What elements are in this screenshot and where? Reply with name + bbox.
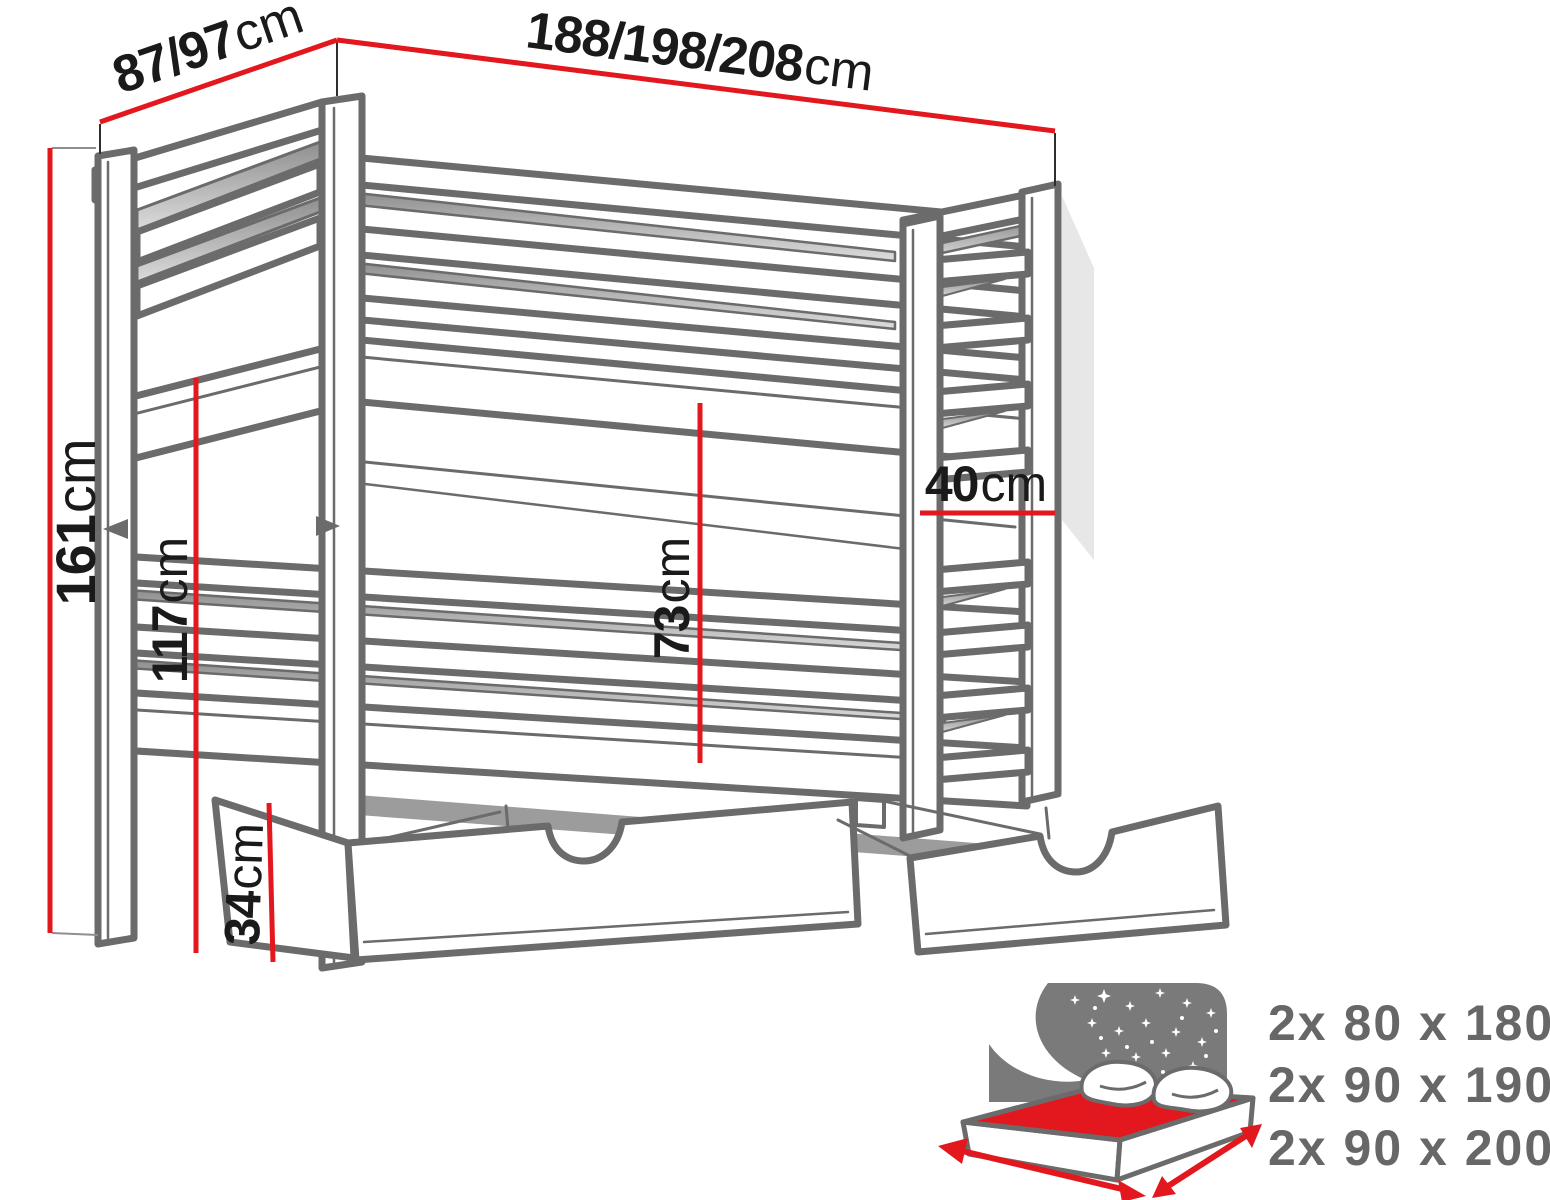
dimension-value: 117: [142, 605, 198, 683]
upper-platform-head: [120, 344, 340, 462]
dimension-unit: cm: [216, 822, 274, 891]
pillow: [1154, 1068, 1232, 1112]
ladder-rung: [935, 252, 1028, 282]
mattress-size-option: 2x 90 x 200: [1268, 1123, 1550, 1173]
dimension-value: 73: [644, 606, 700, 660]
dimension-unit: cm: [644, 537, 700, 604]
dimension-value: 40: [925, 456, 979, 512]
bed-post-front-right: [903, 216, 940, 838]
dimension-unit: cm: [142, 537, 198, 604]
mattress-icon: [938, 983, 1262, 1200]
dimension-unit: cm: [980, 456, 1047, 512]
ladder-rung: [935, 384, 1028, 414]
ladder-rung: [935, 562, 1028, 592]
ladder-rung: [935, 688, 1028, 718]
lower-platform: [120, 692, 1027, 806]
dimension-label-drawer-height: 34cm: [217, 822, 271, 946]
ladder-rung: [935, 318, 1028, 348]
extension-line: [52, 933, 98, 935]
arrowhead: [938, 1138, 968, 1164]
right-drawer-front: [910, 806, 1226, 952]
mattress-size-option: 2x 90 x 190: [1268, 1060, 1550, 1110]
dimension-label-lower-clearance: 73cm: [647, 537, 697, 659]
ladder: [935, 252, 1028, 780]
mattress-size-option: 2x 80 x 180: [1268, 998, 1550, 1048]
dimension-label-upper-bunk-height: 117cm: [145, 537, 195, 683]
dimension-unit: cm: [801, 36, 877, 102]
dimension-value: 34: [214, 891, 272, 947]
arrowhead: [1152, 1176, 1176, 1198]
drawer-interior-line: [1046, 808, 1049, 838]
dimension-value: 161: [44, 515, 107, 605]
bed-shadow: [1062, 196, 1094, 560]
underbed-notch: [856, 799, 884, 827]
storage-drawers: [215, 799, 1226, 960]
diagram-page: 87/97cm 188/198/208cm 161cm 117cm 73cm 4…: [0, 0, 1550, 1200]
dimension-unit: cm: [44, 438, 107, 513]
ladder-rung: [935, 625, 1028, 655]
rear-rail-line: [365, 484, 905, 549]
ladder-rung: [935, 750, 1028, 780]
dimension-label-total-height: 161cm: [48, 438, 104, 605]
dimension-label-ladder-width: 40cm: [925, 459, 1047, 509]
arrowhead: [1118, 1180, 1146, 1200]
